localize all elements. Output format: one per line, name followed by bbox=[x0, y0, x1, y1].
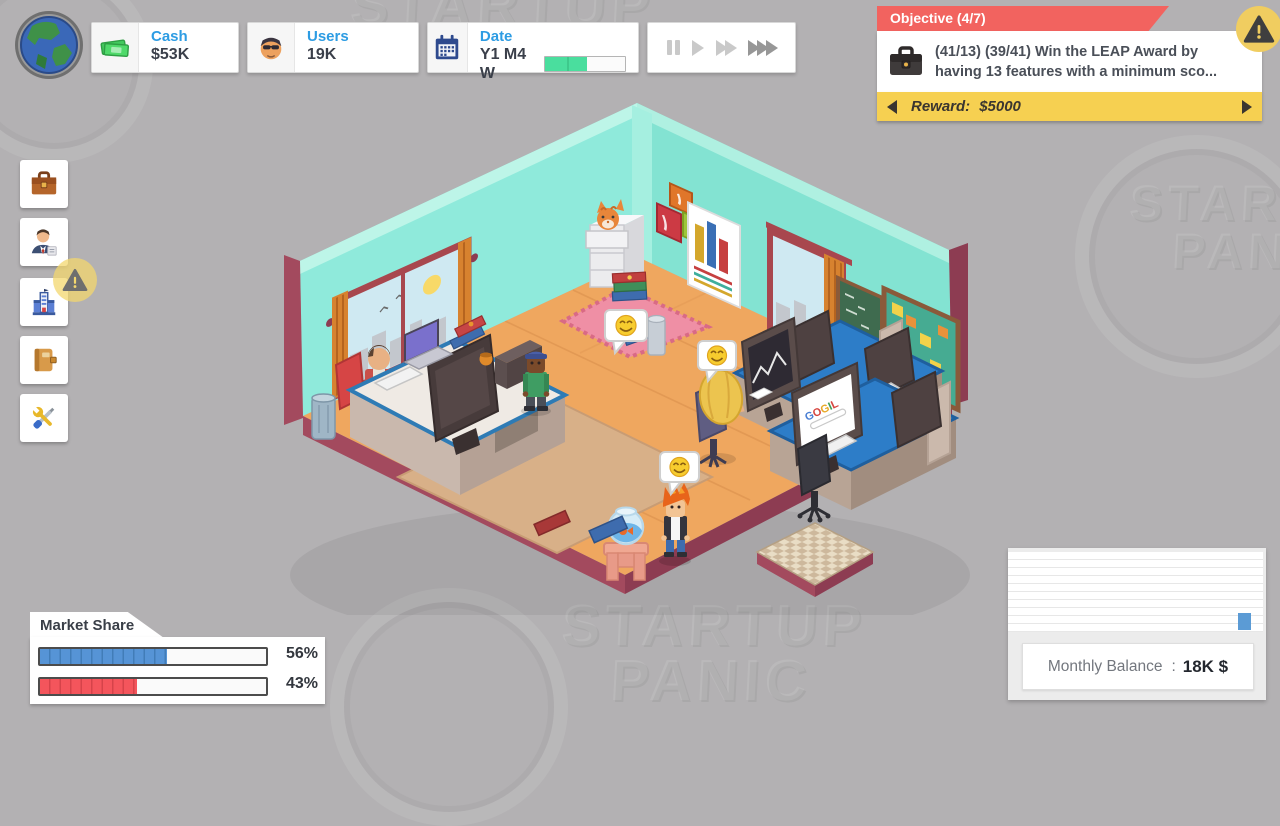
world-map-button[interactable] bbox=[14, 10, 84, 80]
fastest-button[interactable] bbox=[748, 40, 778, 56]
market-share-pct-competitor: 43% bbox=[272, 675, 318, 693]
building-icon bbox=[29, 287, 59, 317]
users-label: Users bbox=[307, 28, 349, 45]
employee-icon bbox=[29, 227, 59, 257]
objective-header: Objective (4/7) bbox=[877, 6, 1169, 31]
week-progress-fill bbox=[545, 57, 587, 71]
pause-button[interactable] bbox=[665, 40, 681, 55]
fast-forward-button[interactable] bbox=[716, 40, 737, 56]
office-chair bbox=[798, 435, 831, 523]
objective-alert-badge[interactable] bbox=[1236, 6, 1280, 52]
market-share-bar-player bbox=[38, 647, 268, 666]
users-panel: Users 19K bbox=[247, 22, 419, 73]
smiling-emoji-icon bbox=[670, 458, 689, 477]
sidebar-item-development[interactable] bbox=[20, 394, 68, 442]
market-share-panel: 56% 43% bbox=[30, 637, 325, 704]
watermark-logo: STARTUPPANIC bbox=[1126, 180, 1280, 275]
play-button[interactable] bbox=[692, 40, 704, 56]
speed-controls bbox=[647, 22, 796, 73]
date-panel: Date Y1 M4 W bbox=[427, 22, 639, 73]
market-share-title: Market Share bbox=[30, 612, 164, 638]
company-alert-badge[interactable] bbox=[53, 258, 97, 302]
monthly-balance-chart bbox=[1008, 552, 1263, 632]
monthly-balance-value: 18K $ bbox=[1183, 657, 1228, 677]
office-scene: GOGIL bbox=[280, 95, 1000, 615]
users-value: 19K bbox=[307, 45, 349, 64]
objective-text: (41/13) (39/41) Win the LEAP Award by ha… bbox=[935, 42, 1262, 82]
tools-icon bbox=[29, 403, 59, 433]
balance-bar bbox=[1238, 613, 1251, 630]
reward-label: Reward: bbox=[911, 98, 970, 115]
cash-icon bbox=[92, 23, 139, 72]
briefcase-icon bbox=[877, 45, 935, 79]
week-progress-bar bbox=[544, 56, 626, 72]
reward-value: $5000 bbox=[979, 98, 1021, 115]
mug bbox=[480, 353, 493, 366]
cash-value: $53K bbox=[151, 45, 189, 64]
notebook-icon bbox=[29, 345, 59, 375]
book-stack bbox=[611, 272, 646, 301]
cash-panel: Cash $53K bbox=[91, 22, 239, 73]
next-objective-arrow[interactable] bbox=[1242, 100, 1252, 114]
briefcase-icon bbox=[29, 169, 59, 199]
warning-icon bbox=[61, 267, 89, 293]
globe-icon bbox=[14, 10, 84, 80]
market-share-fill-competitor bbox=[40, 679, 137, 694]
monthly-balance-label: Monthly Balance bbox=[1048, 658, 1163, 676]
water-cooler bbox=[648, 316, 665, 356]
date-label: Date bbox=[480, 28, 626, 45]
sidebar-item-contracts[interactable] bbox=[20, 160, 68, 208]
watermark-coin bbox=[330, 588, 568, 826]
cash-label: Cash bbox=[151, 28, 189, 45]
market-share-bar-competitor bbox=[38, 677, 268, 696]
market-share-pct-player: 56% bbox=[272, 645, 318, 663]
smiling-emoji-icon bbox=[616, 316, 636, 336]
warning-icon bbox=[1242, 13, 1276, 45]
smiling-emoji-icon bbox=[708, 346, 727, 365]
calendar-icon bbox=[428, 23, 468, 72]
trash-can bbox=[312, 394, 335, 439]
market-share-fill-player bbox=[40, 649, 167, 664]
monthly-balance-info: Monthly Balance : 18K $ bbox=[1022, 643, 1254, 690]
sidebar-item-staff[interactable] bbox=[20, 218, 68, 266]
objective-reward-bar: Reward: $5000 bbox=[877, 92, 1262, 121]
previous-objective-arrow[interactable] bbox=[887, 100, 897, 114]
monthly-balance-panel: Monthly Balance : 18K $ bbox=[1008, 548, 1266, 700]
users-icon bbox=[248, 23, 295, 72]
sidebar-item-journal[interactable] bbox=[20, 336, 68, 384]
objective-panel[interactable]: (41/13) (39/41) Win the LEAP Award by ha… bbox=[877, 31, 1262, 92]
date-value: Y1 M4 W bbox=[480, 45, 535, 83]
